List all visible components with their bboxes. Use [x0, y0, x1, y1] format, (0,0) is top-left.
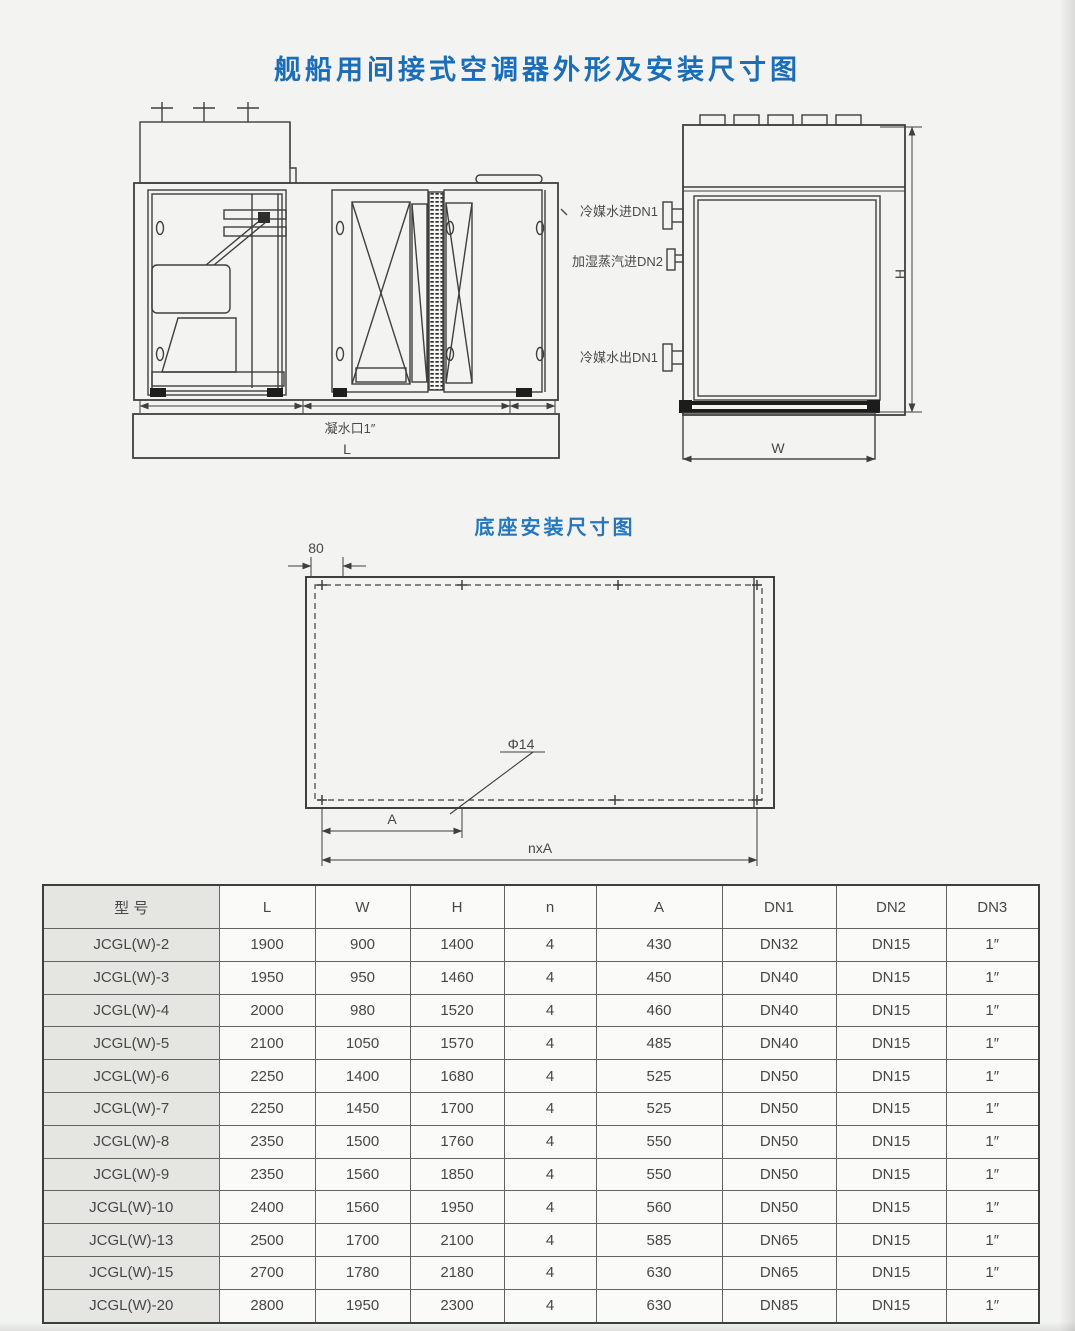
- value-cell: 1760: [410, 1125, 504, 1158]
- value-cell: DN65: [722, 1224, 836, 1257]
- value-cell: 585: [596, 1224, 722, 1257]
- value-cell: 4: [504, 994, 596, 1027]
- value-cell: 1″: [946, 961, 1039, 994]
- value-cell: DN40: [722, 961, 836, 994]
- value-cell: 4: [504, 1256, 596, 1289]
- spec-table-header-row: 型 号LWHnADN1DN2DN3: [43, 885, 1039, 929]
- table-row: JCGL(W)-3195095014604450DN40DN151″: [43, 961, 1039, 994]
- value-cell: 2180: [410, 1256, 504, 1289]
- value-cell: DN15: [836, 1289, 946, 1322]
- table-row: JCGL(W)-152700178021804630DN65DN151″: [43, 1256, 1039, 1289]
- value-cell: 1500: [315, 1125, 410, 1158]
- value-cell: 550: [596, 1125, 722, 1158]
- value-cell: 2250: [219, 1060, 315, 1093]
- model-cell: JCGL(W)-6: [43, 1060, 219, 1093]
- value-cell: 900: [315, 929, 410, 962]
- value-cell: DN50: [722, 1092, 836, 1125]
- value-cell: DN65: [722, 1256, 836, 1289]
- table-row: JCGL(W)-102400156019504560DN50DN151″: [43, 1191, 1039, 1224]
- value-cell: 2350: [219, 1125, 315, 1158]
- dim-W-label: W: [771, 440, 785, 456]
- spec-table-body: JCGL(W)-2190090014004430DN32DN151″JCGL(W…: [43, 929, 1039, 1323]
- col-header-0: 型 号: [43, 885, 219, 929]
- spec-table: 型 号LWHnADN1DN2DN3 JCGL(W)-21900900140044…: [42, 884, 1040, 1324]
- value-cell: 1780: [315, 1256, 410, 1289]
- chilled-out-label: 冷媒水出DN1: [580, 350, 658, 365]
- base-drawing: 80 Φ14 A nxA: [275, 538, 805, 883]
- value-cell: 1700: [315, 1224, 410, 1257]
- col-header-3: H: [410, 885, 504, 929]
- value-cell: DN32: [722, 929, 836, 962]
- table-row: JCGL(W)-52100105015704485DN40DN151″: [43, 1027, 1039, 1060]
- value-cell: DN50: [722, 1191, 836, 1224]
- value-cell: DN50: [722, 1060, 836, 1093]
- value-cell: 2500: [219, 1224, 315, 1257]
- hole-callout-leader: [450, 752, 545, 814]
- value-cell: 1″: [946, 1256, 1039, 1289]
- value-cell: 2400: [219, 1191, 315, 1224]
- value-cell: 1″: [946, 1191, 1039, 1224]
- latch-handles: [157, 222, 544, 361]
- value-cell: DN50: [722, 1125, 836, 1158]
- value-cell: DN15: [836, 1224, 946, 1257]
- base-frame-inner: [315, 585, 762, 800]
- model-cell: JCGL(W)-15: [43, 1256, 219, 1289]
- col-header-6: DN1: [722, 885, 836, 929]
- value-cell: 4: [504, 1125, 596, 1158]
- coil-section: [332, 190, 545, 392]
- value-cell: DN15: [836, 929, 946, 962]
- outline-drawing: 凝水口1″ L 冷媒水进DN1 加湿蒸汽进DN2 冷媒水出DN1: [110, 95, 970, 480]
- side-casing: [683, 125, 905, 415]
- value-cell: 430: [596, 929, 722, 962]
- value-cell: 4: [504, 1027, 596, 1060]
- value-cell: DN15: [836, 1125, 946, 1158]
- dim-80: [288, 557, 366, 577]
- page-title: 舰船用间接式空调器外形及安装尺寸图: [0, 48, 1075, 87]
- chilled-in-label: 冷媒水进DN1: [580, 204, 658, 219]
- value-cell: 4: [504, 1191, 596, 1224]
- value-cell: 1900: [219, 929, 315, 962]
- value-cell: DN50: [722, 1158, 836, 1191]
- scanned-page: 舰船用间接式空调器外形及安装尺寸图: [0, 0, 1075, 1331]
- value-cell: 1050: [315, 1027, 410, 1060]
- value-cell: 2300: [410, 1289, 504, 1322]
- value-cell: 4: [504, 1289, 596, 1322]
- value-cell: 4: [504, 1060, 596, 1093]
- col-header-5: A: [596, 885, 722, 929]
- value-cell: DN15: [836, 994, 946, 1027]
- value-cell: 1560: [315, 1191, 410, 1224]
- hole-callout-label: Φ14: [508, 736, 535, 752]
- value-cell: 1400: [315, 1060, 410, 1093]
- bolt-hole-marks: [317, 580, 762, 805]
- value-cell: 950: [315, 961, 410, 994]
- value-cell: 1950: [315, 1289, 410, 1322]
- value-cell: 4: [504, 929, 596, 962]
- value-cell: DN15: [836, 1092, 946, 1125]
- value-cell: DN15: [836, 961, 946, 994]
- col-header-1: L: [219, 885, 315, 929]
- table-row: JCGL(W)-72250145017004525DN50DN151″: [43, 1092, 1039, 1125]
- top-connectors: [700, 115, 861, 125]
- fan-scroll: [162, 318, 236, 372]
- value-cell: 1850: [410, 1158, 504, 1191]
- value-cell: 1″: [946, 1027, 1039, 1060]
- value-cell: 460: [596, 994, 722, 1027]
- dim-80-label: 80: [308, 540, 324, 556]
- value-cell: 1″: [946, 1158, 1039, 1191]
- value-cell: 1″: [946, 1289, 1039, 1322]
- value-cell: 1″: [946, 1060, 1039, 1093]
- plenum-box: [140, 102, 296, 183]
- pipe-labels: 冷媒水进DN1 加湿蒸汽进DN2 冷媒水出DN1: [561, 204, 663, 365]
- table-row: JCGL(W)-2190090014004430DN32DN151″: [43, 929, 1039, 962]
- model-cell: JCGL(W)-3: [43, 961, 219, 994]
- motor-box: [152, 265, 230, 313]
- fan-section-door: [148, 190, 286, 395]
- table-row: JCGL(W)-82350150017604550DN50DN151″: [43, 1125, 1039, 1158]
- value-cell: DN15: [836, 1027, 946, 1060]
- heater-strip: [429, 192, 443, 390]
- dim-A-label: A: [387, 811, 397, 827]
- value-cell: 1700: [410, 1092, 504, 1125]
- table-row: JCGL(W)-62250140016804525DN50DN151″: [43, 1060, 1039, 1093]
- value-cell: 4: [504, 1158, 596, 1191]
- value-cell: 2350: [219, 1158, 315, 1191]
- model-cell: JCGL(W)-10: [43, 1191, 219, 1224]
- value-cell: 1″: [946, 1224, 1039, 1257]
- value-cell: 2100: [219, 1027, 315, 1060]
- drain-label: 凝水口1″: [325, 421, 376, 436]
- base-section-title: 底座安装尺寸图: [0, 511, 1075, 540]
- value-cell: 1520: [410, 994, 504, 1027]
- model-cell: JCGL(W)-8: [43, 1125, 219, 1158]
- value-cell: DN15: [836, 1256, 946, 1289]
- model-cell: JCGL(W)-2: [43, 929, 219, 962]
- value-cell: 1400: [410, 929, 504, 962]
- steam-in-label: 加湿蒸汽进DN2: [572, 254, 663, 269]
- value-cell: 2000: [219, 994, 315, 1027]
- model-cell: JCGL(W)-4: [43, 994, 219, 1027]
- value-cell: DN40: [722, 1027, 836, 1060]
- model-cell: JCGL(W)-13: [43, 1224, 219, 1257]
- value-cell: DN15: [836, 1158, 946, 1191]
- front-view: [133, 102, 559, 458]
- model-cell: JCGL(W)-9: [43, 1158, 219, 1191]
- value-cell: DN15: [836, 1191, 946, 1224]
- table-row: JCGL(W)-202800195023004630DN85DN151″: [43, 1289, 1039, 1322]
- value-cell: 1460: [410, 961, 504, 994]
- value-cell: 1560: [315, 1158, 410, 1191]
- value-cell: 630: [596, 1289, 722, 1322]
- col-header-2: W: [315, 885, 410, 929]
- value-cell: 1″: [946, 1092, 1039, 1125]
- value-cell: 630: [596, 1256, 722, 1289]
- table-row: JCGL(W)-92350156018504550DN50DN151″: [43, 1158, 1039, 1191]
- value-cell: 1950: [219, 961, 315, 994]
- model-cell: JCGL(W)-5: [43, 1027, 219, 1060]
- model-cell: JCGL(W)-7: [43, 1092, 219, 1125]
- value-cell: 1680: [410, 1060, 504, 1093]
- value-cell: 2700: [219, 1256, 315, 1289]
- value-cell: 1″: [946, 1125, 1039, 1158]
- value-cell: 4: [504, 961, 596, 994]
- pipe-flange-icon: [663, 202, 683, 371]
- value-cell: 4: [504, 1224, 596, 1257]
- value-cell: 4: [504, 1092, 596, 1125]
- col-header-8: DN3: [946, 885, 1039, 929]
- value-cell: 1570: [410, 1027, 504, 1060]
- pipe-stub-icon: [151, 102, 259, 122]
- side-view: [663, 115, 922, 459]
- dim-H-label: H: [892, 269, 908, 279]
- value-cell: 1″: [946, 929, 1039, 962]
- value-cell: 2100: [410, 1224, 504, 1257]
- value-cell: 485: [596, 1027, 722, 1060]
- base-frame-outer: [306, 577, 774, 808]
- value-cell: 2800: [219, 1289, 315, 1322]
- value-cell: DN15: [836, 1060, 946, 1093]
- value-cell: 1450: [315, 1092, 410, 1125]
- value-cell: 450: [596, 961, 722, 994]
- table-row: JCGL(W)-4200098015204460DN40DN151″: [43, 994, 1039, 1027]
- col-header-7: DN2: [836, 885, 946, 929]
- value-cell: 525: [596, 1060, 722, 1093]
- table-row: JCGL(W)-132500170021004585DN65DN151″: [43, 1224, 1039, 1257]
- value-cell: DN85: [722, 1289, 836, 1322]
- value-cell: 2250: [219, 1092, 315, 1125]
- dim-nxA-label: nxA: [528, 840, 553, 856]
- col-header-4: n: [504, 885, 596, 929]
- front-casing: [134, 183, 558, 400]
- value-cell: 1″: [946, 994, 1039, 1027]
- value-cell: DN40: [722, 994, 836, 1027]
- mounting-rail: [679, 400, 880, 413]
- value-cell: 550: [596, 1158, 722, 1191]
- value-cell: 980: [315, 994, 410, 1027]
- value-cell: 1950: [410, 1191, 504, 1224]
- value-cell: 560: [596, 1191, 722, 1224]
- dim-L-label: L: [343, 441, 351, 457]
- value-cell: 525: [596, 1092, 722, 1125]
- model-cell: JCGL(W)-20: [43, 1289, 219, 1322]
- lid-cap: [476, 175, 542, 183]
